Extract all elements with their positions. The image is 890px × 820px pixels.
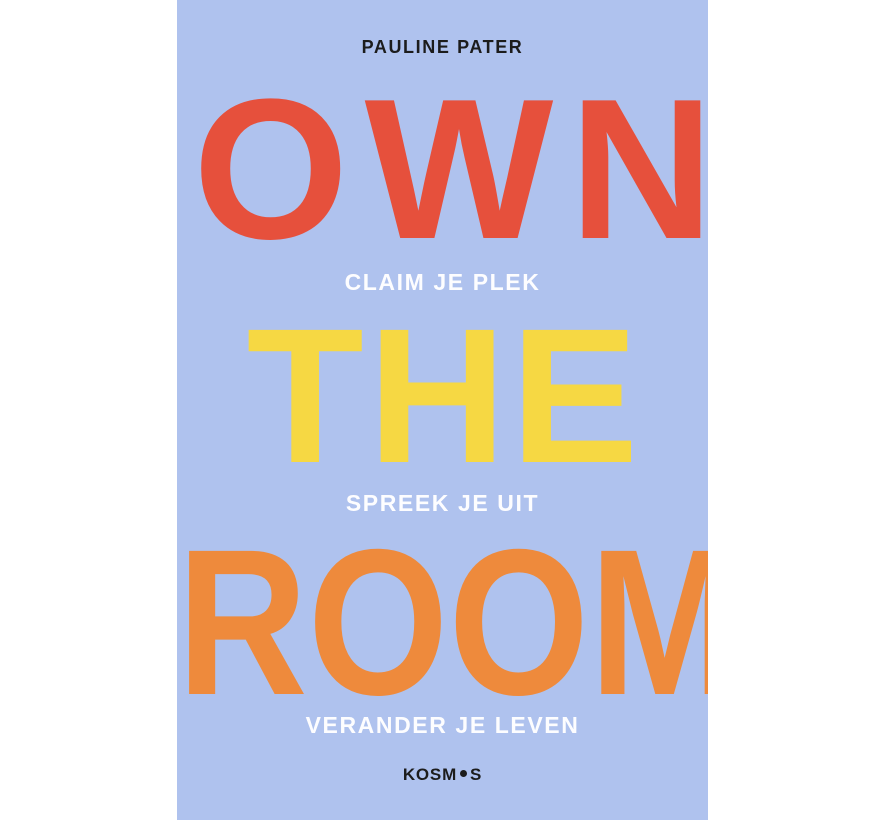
product-image-canvas: PAULINE PATER OWN CLAIM JE PLEK THE SPRE…	[0, 0, 890, 820]
tagline-verander-je-leven: VERANDER JE LEVEN	[177, 712, 708, 739]
author-name: PAULINE PATER	[177, 37, 708, 58]
title-word-room: ROOM	[177, 519, 708, 727]
book-cover: PAULINE PATER OWN CLAIM JE PLEK THE SPRE…	[177, 0, 708, 820]
publisher-logo-text-start: KOSM	[403, 765, 457, 784]
title-word-the: THE	[177, 300, 708, 492]
kosmos-dot-icon	[460, 770, 467, 777]
publisher-logo-text-end: S	[470, 765, 482, 784]
publisher-logo: KOSMS	[177, 765, 708, 785]
title-word-own: OWN	[177, 70, 708, 270]
